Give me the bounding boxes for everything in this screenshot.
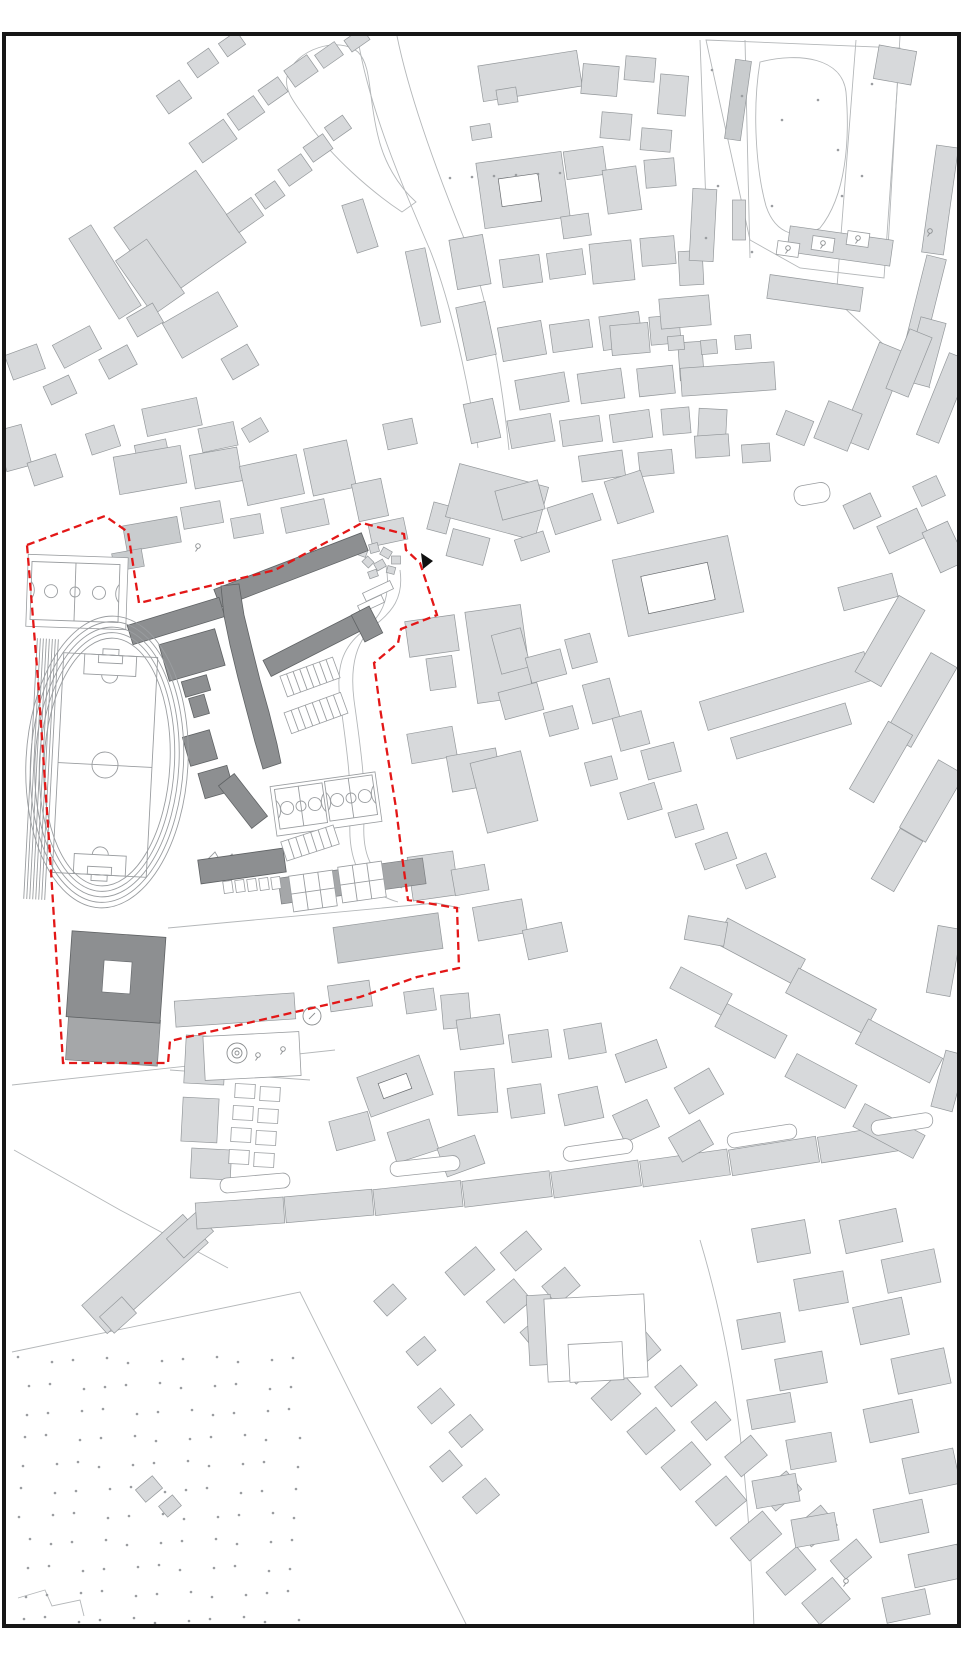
parking-grid	[289, 870, 338, 912]
site-plan-page	[0, 0, 966, 1656]
site-plan-map	[0, 0, 966, 1656]
parking-grid	[338, 861, 387, 903]
